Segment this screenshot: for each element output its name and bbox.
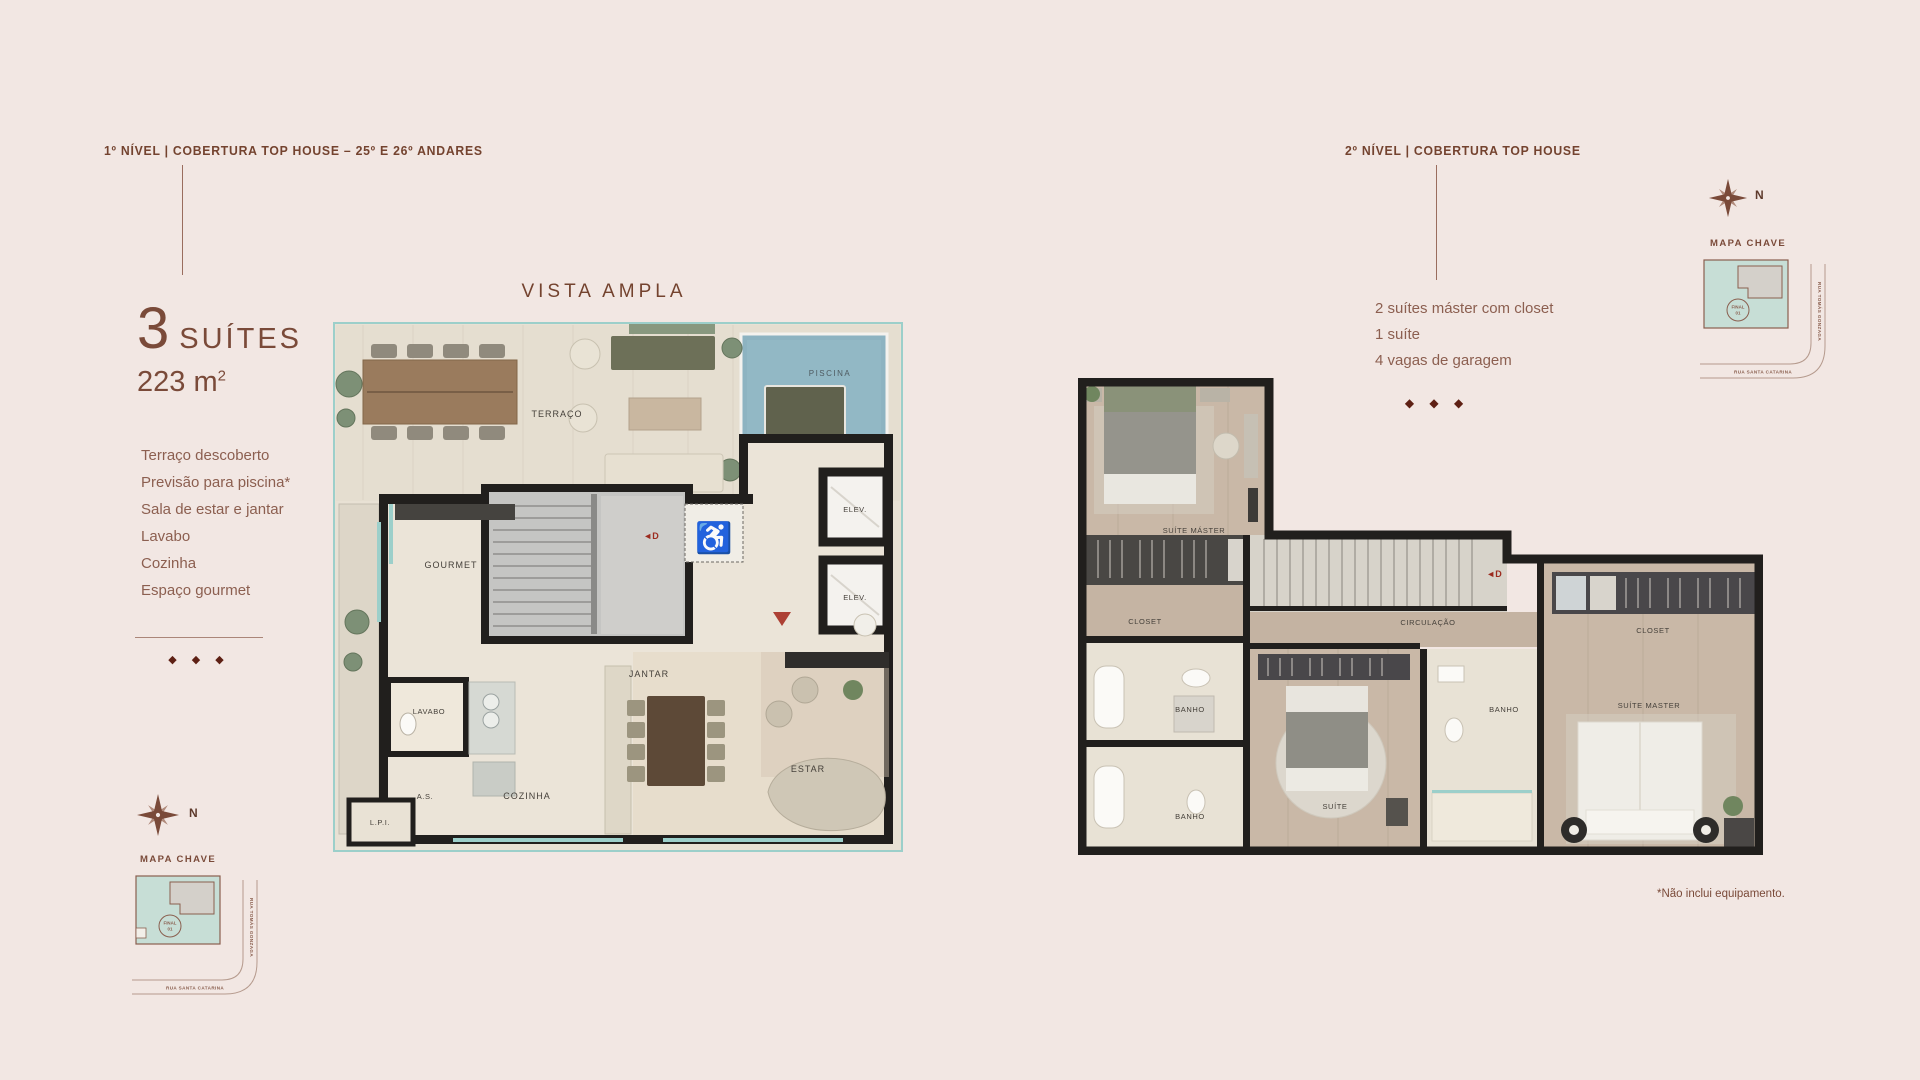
compass-rose-icon — [1708, 178, 1748, 218]
street-horizontal-label: RUA SANTA CATARINA — [166, 986, 224, 991]
level2-title-rule — [1436, 165, 1437, 280]
room-label-as: A.S. — [417, 792, 434, 801]
room-label-cozinha: COZINHA — [503, 791, 551, 801]
suite-master2-furniture — [1561, 714, 1754, 847]
key-map-left: FINAL 01 RUA SANTA CATARINA RUA TOMÁS GO… — [126, 868, 271, 1008]
room-label-circulacao: CIRCULAÇÃO — [1400, 618, 1455, 627]
terrace-sofa — [611, 336, 715, 370]
room-label-suite: SUÍTE — [1322, 802, 1347, 811]
plan1-view-title: VISTA AMPLA — [480, 281, 728, 303]
room-label-banho-2: BANHO — [1175, 812, 1205, 821]
level2-title: 2º NÍVEL | COBERTURA TOP HOUSE — [1345, 143, 1581, 158]
elevator-label: ELEV. — [843, 593, 867, 602]
room-label-gourmet: GOURMET — [425, 560, 478, 570]
street-vertical-label: RUA TOMÁS GONZAGA — [249, 898, 255, 957]
key-map-title-right: MAPA CHAVE — [1710, 238, 1786, 249]
area-exponent: 2 — [218, 367, 226, 384]
north-label: N — [189, 806, 198, 820]
left-diamonds: ◆ ◆ ◆ — [139, 653, 259, 666]
room-label-piscina: PISCINA — [809, 369, 852, 378]
key-map-title-left: MAPA CHAVE — [140, 854, 216, 865]
floor-plan-level2: SUÍTE MÁSTER CLOSET BANHO BANHO ◄D CIRCU… — [1078, 378, 1763, 855]
level1-title-rule — [182, 165, 183, 275]
key-map-right: FINAL 01 RUA SANTA CATARINA RUA TOMÁS GO… — [1694, 252, 1839, 392]
room-label-suite-master: SUÍTE MÁSTER — [1163, 526, 1226, 535]
map-unit-number: 01 — [168, 927, 173, 932]
feature-item: Previsão para piscina* — [141, 469, 290, 496]
feature-item: Terraço descoberto — [141, 442, 290, 469]
left-divider — [135, 637, 263, 638]
map-unit-label: FINAL — [164, 921, 177, 926]
room-label-lavabo: LAVABO — [413, 707, 446, 716]
room-label-lpi: L.P.I. — [370, 818, 390, 827]
footnote: *Não inclui equipamento. — [1657, 888, 1785, 900]
door-marker-level2: ◄D — [1486, 569, 1502, 579]
level1-features: Terraço descoberto Previsão para piscina… — [141, 442, 290, 604]
suites-word: SUÍTES — [179, 323, 302, 356]
elevator-label: ELEV. — [843, 505, 867, 514]
door-marker-level1: ◄D — [643, 531, 659, 541]
map-unit-number: 01 — [1736, 311, 1741, 316]
area-value: 223 m — [137, 366, 218, 398]
unit-area: 223 m2 — [137, 366, 302, 399]
north-label: N — [1755, 188, 1764, 202]
compass-rose-icon — [136, 793, 180, 837]
level1-title: 1º NÍVEL | COBERTURA TOP HOUSE – 25º E 2… — [104, 143, 483, 158]
feature-item: Sala de estar e jantar — [141, 496, 290, 523]
floor-plan-level1: PISCINA TERRAÇO — [333, 322, 903, 852]
closet-right-furniture — [1552, 572, 1756, 614]
room-label-closet-left: CLOSET — [1128, 617, 1162, 626]
level2-features: 2 suítes máster com closet 1 suíte 4 vag… — [1375, 296, 1553, 374]
room-label-terraco: TERRAÇO — [531, 409, 582, 419]
room-label-suite-master-2: SUÍTE MASTER — [1618, 701, 1681, 710]
feature-item: 1 suíte — [1375, 322, 1553, 348]
stair-core — [485, 488, 689, 640]
wheelchair-icon: ♿ — [695, 520, 732, 555]
feature-item: Cozinha — [141, 550, 290, 577]
street-vertical-label: RUA TOMÁS GONZAGA — [1817, 282, 1823, 341]
feature-item: 4 vagas de garagem — [1375, 348, 1553, 374]
room-label-estar: ESTAR — [791, 764, 825, 774]
street-horizontal-label: RUA SANTA CATARINA — [1734, 370, 1792, 375]
feature-item: Espaço gourmet — [141, 577, 290, 604]
room-label-banho-1: BANHO — [1175, 705, 1205, 714]
feature-item: 2 suítes máster com closet — [1375, 296, 1553, 322]
unit-spec: 3 SUÍTES 223 m2 — [137, 300, 302, 399]
room-label-banho-3: BANHO — [1489, 705, 1519, 714]
room-label-jantar: JANTAR — [629, 669, 669, 679]
feature-item: Lavabo — [141, 523, 290, 550]
map-unit-label: FINAL — [1732, 305, 1745, 310]
room-label-closet-right: CLOSET — [1636, 626, 1670, 635]
suites-count: 3 — [137, 300, 169, 358]
